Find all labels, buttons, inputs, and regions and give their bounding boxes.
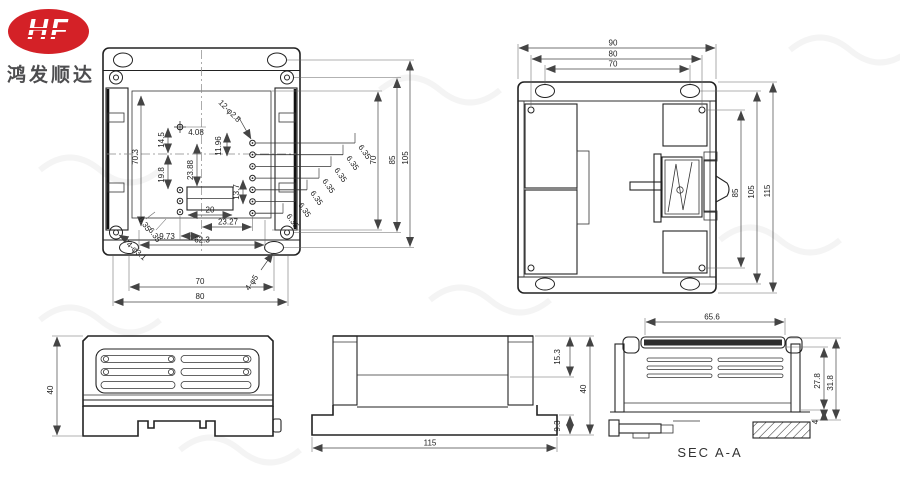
dim-145: 14.5 (157, 132, 166, 148)
dim-2388: 23.88 (186, 159, 195, 180)
side-channel-right (275, 88, 297, 230)
front-dim-height: 40 (46, 336, 83, 436)
dim-overall-height: 105 (401, 151, 410, 165)
pitch-label: 6.35 (296, 201, 313, 219)
drawing-canvas: 70 85 105 70 80 23.27 20 9.73 62.3 (0, 0, 900, 500)
section-dims: 27.8 31.8 4 (787, 338, 841, 424)
end-view: 15.3 40 9.3 115 (312, 336, 594, 452)
dim-inner-height-left: 70.3 (131, 149, 140, 165)
side-channel-left (106, 88, 128, 230)
dim-153: 15.3 (553, 349, 562, 365)
watermark (40, 38, 900, 463)
bottom-dims-right: 85 105 115 (700, 82, 777, 293)
dim-80: 80 (609, 50, 618, 59)
dim-90: 90 (609, 39, 618, 48)
section-vents (647, 358, 783, 378)
dim-278: 27.8 (813, 373, 822, 389)
pitch-label: 6.35 (320, 177, 337, 195)
section-rail-foot (609, 420, 700, 438)
dim-slot-span: 70 (196, 277, 205, 286)
section-view: 65.6 27.8 (609, 313, 841, 461)
dim-656: 65.6 (704, 313, 720, 322)
lid-section (644, 340, 782, 346)
section-cut-block (753, 422, 810, 438)
dim-base-width: 80 (196, 292, 205, 301)
dim-40: 40 (579, 384, 588, 393)
dim-105: 105 (747, 185, 756, 199)
pitch-label: 6.35 (344, 154, 361, 172)
dim-408: 4.08 (188, 128, 204, 137)
dim-137: 13.7 (232, 184, 241, 200)
dim-93: 9.3 (553, 420, 562, 432)
dim-4: 4 (811, 419, 820, 424)
pitch-labels: 6.35 6.35 6.35 6.35 6.35 6.35 6.35 6.35 … (136, 143, 373, 244)
pitch-label: 6.35 (308, 189, 325, 207)
dim-40: 40 (46, 385, 55, 394)
dim-1196: 11.96 (214, 136, 223, 156)
pitch-label: 6.35 (332, 166, 349, 184)
bottom-view: 90 80 70 85 105 115 (518, 39, 777, 294)
callout-pin-holes: 12-φ2.8 (217, 98, 243, 124)
dim-pattern-width: 62.3 (194, 236, 210, 245)
dim-115: 115 (763, 184, 772, 197)
dim-screw-span: 85 (388, 155, 397, 164)
dim-socket-width: 20 (206, 206, 215, 215)
callout-slot-holes: 4-φ5 (243, 273, 260, 292)
din-clip (630, 152, 729, 222)
dim-115: 115 (424, 439, 437, 448)
pitch-label: 6.35 (146, 226, 163, 244)
dim-198: 19.8 (157, 167, 166, 183)
vent-slots (101, 356, 251, 389)
dim-85: 85 (731, 188, 740, 197)
front-view: 40 (46, 336, 281, 436)
section-label: SEC A-A (677, 445, 742, 460)
dim-70: 70 (609, 60, 618, 69)
dim-center-to-holes: 23.27 (218, 218, 239, 227)
dim-318: 31.8 (826, 375, 835, 391)
